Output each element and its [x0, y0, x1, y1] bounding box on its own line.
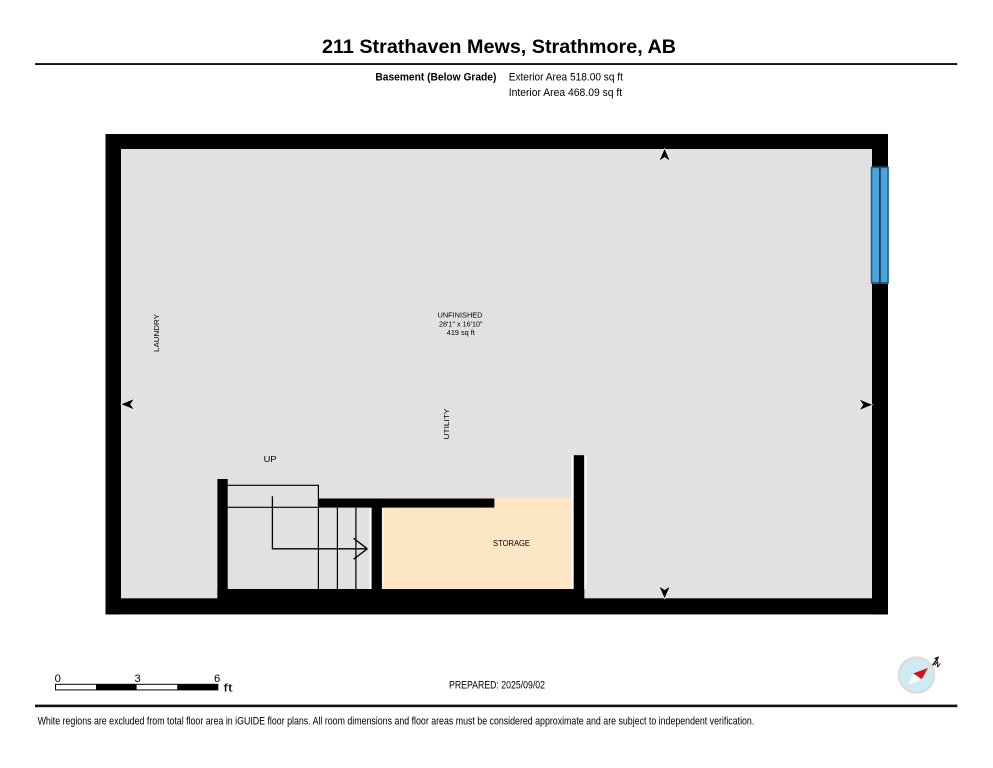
svg-text:Basement (Below Grade): Basement (Below Grade) — [375, 71, 496, 83]
svg-text:6: 6 — [214, 673, 220, 685]
svg-text:Interior Area 468.09 sq ft: Interior Area 468.09 sq ft — [509, 87, 623, 99]
svg-text:STORAGE: STORAGE — [493, 539, 530, 548]
svg-text:3: 3 — [135, 673, 141, 685]
svg-text:White regions are excluded fro: White regions are excluded from total fl… — [38, 715, 755, 727]
svg-text:LAUNDRY: LAUNDRY — [152, 314, 161, 352]
svg-text:0: 0 — [55, 673, 61, 685]
svg-text:419 sq ft: 419 sq ft — [447, 328, 476, 337]
svg-text:211 Strathaven Mews, Strathmor: 211 Strathaven Mews, Strathmore, AB — [322, 36, 676, 58]
svg-text:UP: UP — [264, 454, 277, 464]
svg-text:ft: ft — [223, 683, 233, 695]
svg-text:PREPARED: 2025/09/02: PREPARED: 2025/09/02 — [449, 679, 545, 691]
svg-text:UNFINISHED: UNFINISHED — [438, 311, 484, 320]
svg-text:N: N — [933, 661, 941, 670]
svg-text:Exterior Area 518.00 sq ft: Exterior Area 518.00 sq ft — [509, 71, 624, 83]
svg-text:UTILITY: UTILITY — [442, 409, 451, 440]
